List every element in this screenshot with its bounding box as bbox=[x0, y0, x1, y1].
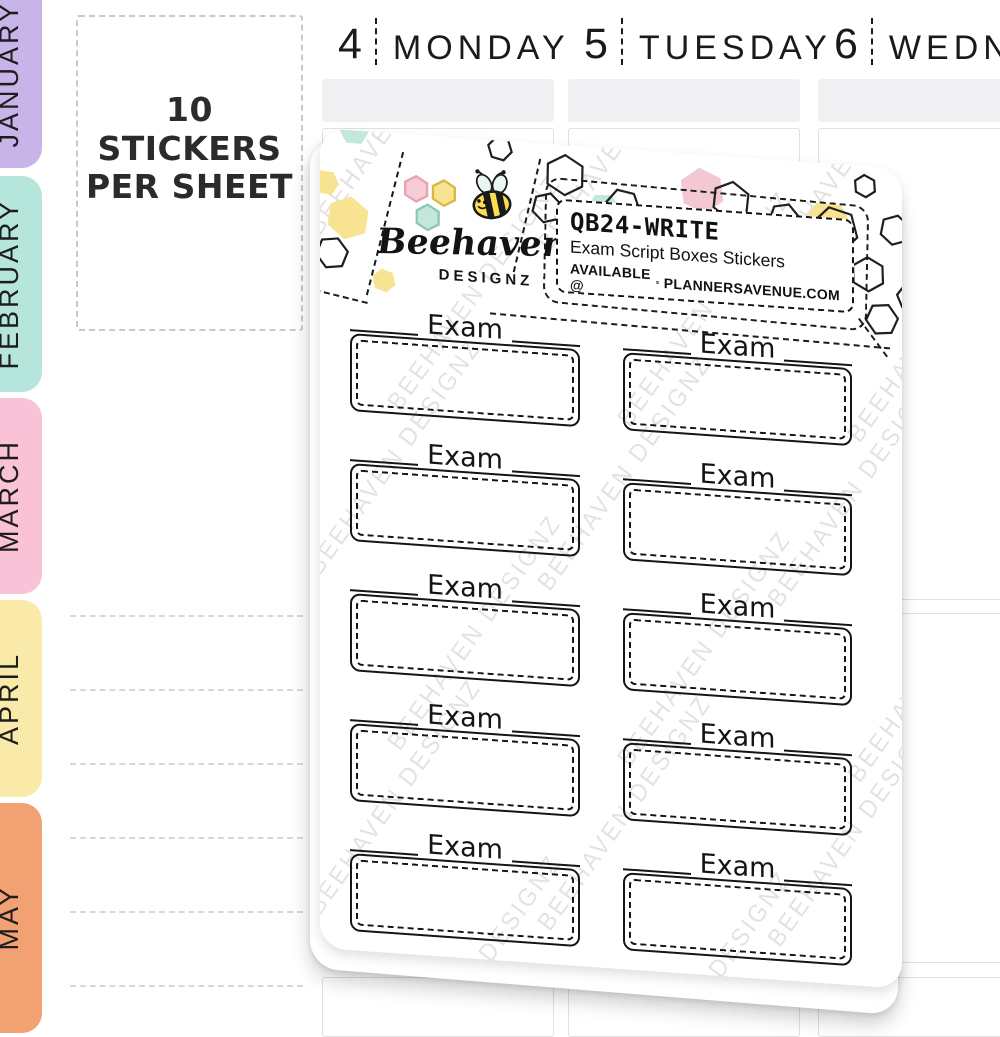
month-tab-label: MAY bbox=[0, 885, 25, 951]
month-tab-may: MAY bbox=[0, 803, 42, 1033]
day-number: 5 bbox=[584, 27, 608, 62]
exam-box-dashed-inner bbox=[356, 730, 574, 811]
availability-text: AVAILABLE @ bbox=[570, 260, 651, 298]
exam-box-dashed-inner bbox=[629, 619, 846, 700]
note-line bbox=[70, 615, 303, 617]
day-header: 5 TUESDAY bbox=[584, 18, 832, 62]
hexagon-icon bbox=[855, 174, 875, 197]
storefront-icon bbox=[656, 274, 659, 290]
month-tab-march: MARCH bbox=[0, 398, 42, 594]
sticker-sheet: BEEHAVEN DESIGNZBEEHAVEN DESIGNZBEEHAVEN… bbox=[320, 128, 902, 989]
day-header: 4 MONDAY bbox=[338, 18, 570, 62]
exam-box-dashed-inner bbox=[629, 749, 846, 830]
month-tab-label: MARCH bbox=[0, 439, 25, 553]
month-tab-april: APRIL bbox=[0, 600, 42, 797]
day-name: TUESDAY bbox=[639, 35, 832, 62]
note-line bbox=[70, 837, 303, 839]
hexagon-icon bbox=[881, 215, 902, 246]
note-line bbox=[70, 985, 303, 987]
month-tab-label: APRIL bbox=[0, 652, 25, 745]
month-tab-label: JANUARY bbox=[0, 1, 25, 148]
exam-sticker: Exam bbox=[623, 449, 852, 576]
day-header-shade bbox=[322, 79, 554, 122]
exam-writing-box bbox=[350, 853, 580, 947]
brand-logo: Beehaven DESIGNZ bbox=[372, 160, 572, 314]
exam-writing-box bbox=[623, 482, 852, 576]
hexagon-icon bbox=[320, 170, 339, 195]
exam-box-dashed-inner bbox=[356, 470, 574, 551]
exam-sticker: Exam bbox=[623, 579, 852, 706]
note-line bbox=[70, 763, 303, 765]
exam-writing-box bbox=[623, 352, 852, 446]
exam-writing-box bbox=[350, 723, 580, 817]
day-name: WEDNES bbox=[889, 35, 1000, 62]
exam-sticker: Exam bbox=[350, 560, 580, 687]
exam-sticker: Exam bbox=[350, 820, 580, 947]
hexagon-icon bbox=[339, 128, 369, 144]
day-number: 4 bbox=[338, 27, 362, 62]
bee-icon bbox=[458, 166, 526, 229]
month-tab-label: FEBRUARY bbox=[0, 199, 25, 370]
month-tab-february: FEBRUARY bbox=[0, 176, 42, 392]
dashed-separator bbox=[621, 18, 623, 65]
sticker-count-line2: PER SHEET bbox=[78, 168, 301, 207]
exam-box-dashed-inner bbox=[629, 879, 846, 960]
exam-sticker: Exam bbox=[623, 319, 852, 446]
dashed-separator bbox=[871, 18, 873, 65]
exam-writing-box bbox=[623, 872, 852, 966]
sticker-count-line1: 10 STICKERS bbox=[78, 91, 301, 168]
month-tab-january: JANUARY bbox=[0, 0, 42, 168]
planner-cell bbox=[322, 977, 554, 1037]
hexagon-icon bbox=[897, 284, 902, 310]
sticker-count-note-box: 10 STICKERS PER SHEET bbox=[76, 15, 303, 331]
day-header-shade bbox=[568, 79, 800, 122]
note-line bbox=[70, 911, 303, 913]
exam-box-dashed-inner bbox=[629, 489, 846, 570]
availability-site: PLANNERSAVENUE.COM bbox=[664, 275, 840, 303]
exam-sticker: Exam bbox=[623, 839, 852, 966]
hexagon-icon bbox=[866, 304, 898, 335]
exam-sticker: Exam bbox=[350, 300, 580, 427]
brand-name-script: Beehaven bbox=[371, 221, 573, 266]
dashed-separator bbox=[375, 18, 377, 65]
day-name: MONDAY bbox=[393, 35, 570, 62]
exam-writing-box bbox=[350, 463, 580, 557]
day-header: 6 WEDNES bbox=[834, 18, 1000, 62]
exam-box-dashed-inner bbox=[356, 600, 574, 681]
exam-sticker: Exam bbox=[350, 690, 580, 817]
note-line bbox=[70, 689, 303, 691]
exam-writing-box bbox=[623, 612, 852, 706]
hexagon-icon bbox=[328, 195, 369, 241]
exam-sticker: Exam bbox=[350, 430, 580, 557]
exam-box-dashed-inner bbox=[356, 860, 574, 941]
exam-writing-box bbox=[350, 333, 580, 427]
day-header-shade bbox=[818, 79, 1000, 122]
exam-box-dashed-inner bbox=[356, 340, 574, 421]
exam-writing-box bbox=[350, 593, 580, 687]
exam-writing-box bbox=[623, 742, 852, 836]
hexagon-icon bbox=[320, 237, 348, 269]
day-number: 6 bbox=[834, 27, 858, 62]
exam-box-dashed-inner bbox=[629, 359, 846, 440]
exam-sticker: Exam bbox=[623, 709, 852, 836]
